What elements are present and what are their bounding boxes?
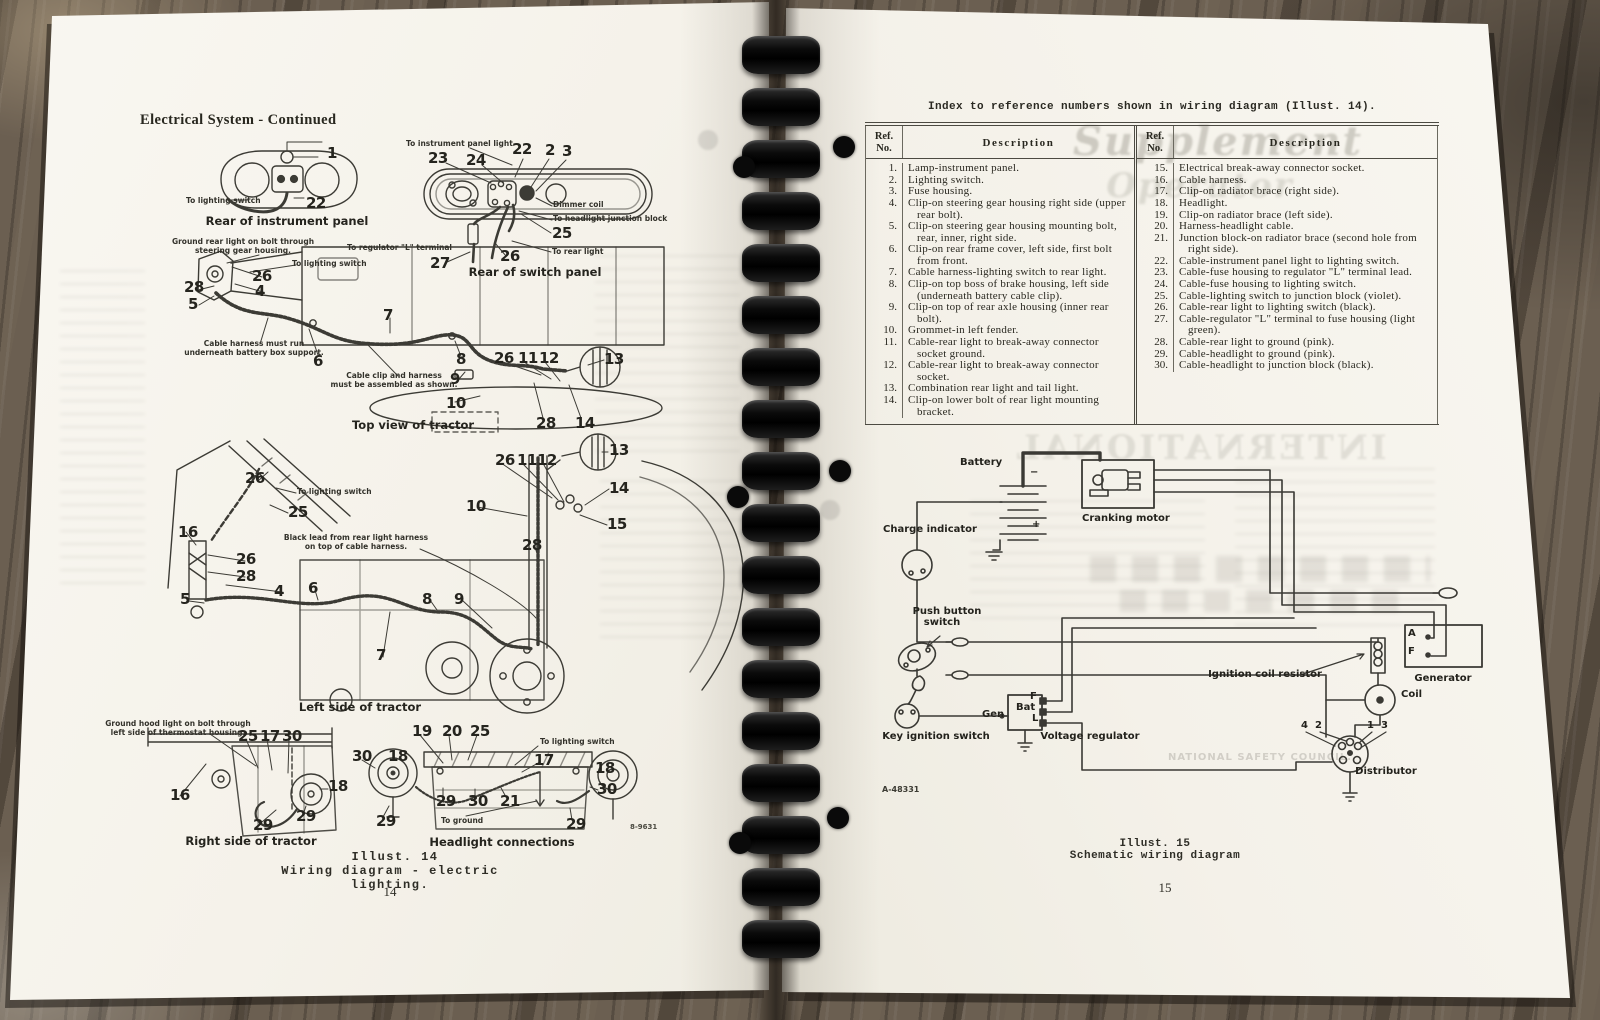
charge-indicator-label: Charge indicator bbox=[883, 524, 977, 535]
diagram-label: 9 bbox=[450, 372, 460, 387]
push-button-switch-label: Push button bbox=[913, 606, 982, 617]
diagram-label: 13 bbox=[609, 443, 629, 458]
diagram-label: 10 bbox=[446, 396, 466, 411]
index-title: Index to reference numbers shown in wiri… bbox=[865, 101, 1439, 113]
diagram-label: 12 bbox=[539, 351, 559, 366]
diagram-label: on top of cable harness. bbox=[305, 542, 407, 551]
diagram-label: 11 bbox=[517, 453, 537, 468]
schematic-wiring-line-art bbox=[850, 440, 1490, 820]
ref-no-cell: 8. bbox=[866, 279, 902, 302]
ref-no-cell: 18. bbox=[1137, 198, 1173, 210]
page-number: 14 bbox=[350, 884, 430, 900]
key-ignition-switch-label: Key ignition switch bbox=[882, 731, 990, 742]
binding-tooth bbox=[742, 88, 820, 126]
diagram-label: 22 bbox=[512, 142, 532, 157]
binding-tooth bbox=[742, 348, 820, 386]
diagram-label: 2 bbox=[545, 143, 555, 158]
ref-no-cell: 20. bbox=[1137, 221, 1173, 233]
index-table-right-half: Ref.No. Description 15.Electrical break-… bbox=[1137, 126, 1438, 424]
diagram-label: underneath battery box support. bbox=[184, 348, 324, 357]
figure-code-left: 8-9631 bbox=[630, 824, 657, 831]
index-table-row: 24.Cable-fuse housing to lighting switch… bbox=[1137, 279, 1437, 291]
column-header-description: Description bbox=[902, 126, 1134, 158]
punch-hole bbox=[833, 136, 855, 158]
binding-tooth bbox=[742, 140, 820, 178]
diagram-label: To instrument panel light bbox=[406, 139, 513, 148]
diagram-label: 2 bbox=[1315, 721, 1322, 731]
diagram-label: 30 bbox=[352, 749, 372, 764]
description-cell: Cable-headlight to junction block (black… bbox=[1173, 360, 1437, 372]
diagram-label: L bbox=[1032, 714, 1038, 724]
description-cell: Clip-on rear frame cover, left side, fir… bbox=[902, 244, 1134, 267]
diagram-label: Rear of instrument panel bbox=[206, 216, 369, 228]
index-table-row: 2.Lighting switch. bbox=[866, 175, 1134, 187]
diagram-label: 28 bbox=[184, 280, 204, 295]
diagram-label: Cable clip and harness bbox=[346, 371, 442, 380]
punch-hole bbox=[727, 486, 749, 508]
diagram-label: 27 bbox=[430, 256, 450, 271]
diagram-label: Ground hood light on bolt through bbox=[105, 719, 251, 728]
punch-hole bbox=[729, 832, 751, 854]
binding-tooth bbox=[742, 556, 820, 594]
ref-no-cell: 6. bbox=[866, 244, 902, 267]
diagram-label: 17 bbox=[260, 729, 280, 744]
diagram-label: 30 bbox=[282, 729, 302, 744]
illustration-caption: Illust. 15 bbox=[1060, 838, 1250, 850]
page-number: 15 bbox=[1125, 880, 1205, 896]
index-table-row: 1.Lamp-instrument panel. bbox=[866, 163, 1134, 175]
voltage-regulator-label: Voltage regulator bbox=[1040, 731, 1139, 742]
diagram-label: 30 bbox=[468, 794, 488, 809]
binding-tooth bbox=[742, 452, 820, 490]
diagram-label: 15 bbox=[607, 517, 627, 532]
column-header-ref-no: Ref.No. bbox=[866, 126, 902, 158]
diagram-label: 6 bbox=[308, 581, 318, 596]
index-table-row: 6.Clip-on rear frame cover, left side, f… bbox=[866, 244, 1134, 267]
diagram-label: 23 bbox=[428, 151, 448, 166]
diagram-label: 4 bbox=[1301, 721, 1308, 731]
ref-no-cell: 15. bbox=[1137, 163, 1173, 175]
description-cell: Clip-on lower bolt of rear light mountin… bbox=[902, 395, 1134, 418]
battery-label: Battery bbox=[960, 457, 1002, 468]
diagram-label: 30 bbox=[597, 782, 617, 797]
binding-tooth bbox=[742, 244, 820, 282]
diagram-label: left side of thermostat housing. bbox=[111, 728, 246, 737]
index-rows-1-14: 1.Lamp-instrument panel.2.Lighting switc… bbox=[866, 159, 1134, 424]
diagram-label: 19 bbox=[412, 724, 432, 739]
diagram-label: Dimmer coil bbox=[553, 200, 604, 209]
description-cell: Harness-headlight cable. bbox=[1173, 221, 1437, 233]
diagram-label: 4 bbox=[255, 284, 265, 299]
diagram-label: To lighting switch bbox=[540, 737, 615, 746]
diagram-label: 17 bbox=[534, 753, 554, 768]
diagram-label: 5 bbox=[180, 592, 190, 607]
ref-no-cell: 1. bbox=[866, 163, 902, 175]
diagram-label: steering gear housing. bbox=[195, 246, 291, 255]
diagram-label: 7 bbox=[383, 308, 393, 323]
coil-label: Coil bbox=[1401, 689, 1422, 700]
description-cell: Clip-on top of rear axle housing (inner … bbox=[902, 302, 1134, 325]
diagram-label: 18 bbox=[388, 749, 408, 764]
description-cell: Junction block-on radiator brace (second… bbox=[1173, 233, 1437, 256]
diagram-label: 6 bbox=[313, 354, 323, 369]
diagram-label: Bat bbox=[1016, 703, 1035, 713]
index-table-row: 14.Clip-on lower bolt of rear light moun… bbox=[866, 395, 1134, 418]
diagram-label: Gen bbox=[982, 710, 1004, 720]
binding-tooth bbox=[742, 816, 820, 854]
index-table-row: 30.Cable-headlight to junction block (bl… bbox=[1137, 360, 1437, 372]
ref-no-cell: 5. bbox=[866, 221, 902, 244]
diagram-label: 26 bbox=[495, 453, 515, 468]
diagram-label: 26 bbox=[245, 471, 265, 486]
diagram-label: Left side of tractor bbox=[299, 702, 421, 714]
diagram-label: 28 bbox=[522, 538, 542, 553]
diagram-label: F bbox=[1030, 692, 1037, 702]
index-table-row: 18.Headlight. bbox=[1137, 198, 1437, 210]
ref-no-cell: 4. bbox=[866, 198, 902, 221]
diagram-label: 1 bbox=[1367, 721, 1374, 731]
diagram-label: Cable harness must run bbox=[204, 339, 304, 348]
binding-tooth bbox=[742, 192, 820, 230]
diagram-label: 9 bbox=[454, 592, 464, 607]
illustration-caption: Schematic wiring diagram bbox=[1040, 850, 1270, 862]
binding-tooth bbox=[742, 764, 820, 802]
description-cell: Cable-rear light to break-away connector… bbox=[902, 360, 1134, 383]
index-table-row: 4.Clip-on steering gear housing right si… bbox=[866, 198, 1134, 221]
diagram-label: To headlight junction block bbox=[553, 214, 667, 223]
diagram-label: 29 bbox=[566, 817, 586, 832]
illustration-caption: Illust. 14 bbox=[300, 850, 490, 864]
ref-no-cell: 28. bbox=[1137, 337, 1173, 349]
diagram-label: 7 bbox=[376, 648, 386, 663]
diagram-label: 21 bbox=[500, 794, 520, 809]
description-cell: Lamp-instrument panel. bbox=[902, 163, 1134, 175]
index-table-left-half: Ref.No. Description 1.Lamp-instrument pa… bbox=[865, 126, 1137, 424]
binding-tooth bbox=[742, 712, 820, 750]
diagram-label: 1 bbox=[327, 146, 337, 161]
description-cell: Clip-on steering gear housing mounting b… bbox=[902, 221, 1134, 244]
binding-tooth bbox=[742, 920, 820, 958]
diagram-label: 13 bbox=[604, 352, 624, 367]
diagram-label: 8 bbox=[456, 352, 466, 367]
diagram-label: Right side of tractor bbox=[185, 836, 316, 848]
diagram-label: switch bbox=[924, 617, 960, 628]
diagram-label: 22 bbox=[306, 196, 326, 211]
cranking-motor-label: Cranking motor bbox=[1082, 513, 1170, 524]
diagram-label: 3 bbox=[1381, 721, 1388, 731]
diagram-label: Top view of tractor bbox=[352, 420, 474, 432]
diagram-label: 28 bbox=[236, 569, 256, 584]
diagram-label: 25 bbox=[552, 226, 572, 241]
binding-tooth bbox=[742, 660, 820, 698]
diagram-label: 3 bbox=[562, 144, 572, 159]
diagram-label: To rear light bbox=[552, 247, 603, 256]
diagram-label: 24 bbox=[466, 153, 486, 168]
diagram-label: 26 bbox=[494, 351, 514, 366]
diagram-label: 25 bbox=[470, 724, 490, 739]
ref-no-cell: 27. bbox=[1137, 314, 1173, 337]
description-cell: Cable-rear light to ground (pink). bbox=[1173, 337, 1437, 349]
generator-label: Generator bbox=[1414, 673, 1471, 684]
diagram-label: 11 bbox=[518, 351, 538, 366]
diagram-label: 14 bbox=[609, 481, 629, 496]
diagram-label: 10 bbox=[466, 499, 486, 514]
ignition-coil-resistor-label: Ignition coil resistor bbox=[1208, 669, 1322, 680]
diagram-label: To lighting switch bbox=[292, 259, 367, 268]
punch-hole-ghost bbox=[698, 130, 718, 150]
description-cell: Headlight. bbox=[1173, 198, 1437, 210]
diagram-label: F bbox=[1408, 647, 1415, 657]
index-table-row: 21.Junction block-on radiator brace (sec… bbox=[1137, 233, 1437, 256]
index-table-row: 5.Clip-on steering gear housing mounting… bbox=[866, 221, 1134, 244]
diagram-label: 26 bbox=[236, 552, 256, 567]
diagram-label: 18 bbox=[328, 779, 348, 794]
punch-hole bbox=[733, 156, 755, 178]
diagram-label: 18 bbox=[595, 761, 615, 776]
distributor-label: Distributor bbox=[1355, 766, 1417, 777]
photo-open-spiral-manual: Electrical System - Continued bbox=[0, 0, 1600, 1020]
diagram-label: 16 bbox=[170, 788, 190, 803]
diagram-label: 29 bbox=[376, 814, 396, 829]
diagram-label: 29 bbox=[296, 809, 316, 824]
manual-page-right: SupplementOperatorINTERNATIONALNATIONAL … bbox=[770, 0, 1600, 1020]
binding-tooth bbox=[742, 400, 820, 438]
diagram-label: Headlight connections bbox=[429, 837, 574, 849]
index-table-row: 8.Clip-on top boss of brake housing, lef… bbox=[866, 279, 1134, 302]
description-cell: Cable-fuse housing to lighting switch. bbox=[1173, 279, 1437, 291]
diagram-label: 5 bbox=[188, 297, 198, 312]
column-header-description: Description bbox=[1173, 126, 1437, 158]
index-table-row: 9.Clip-on top of rear axle housing (inne… bbox=[866, 302, 1134, 325]
index-table-row: 15.Electrical break-away connector socke… bbox=[1137, 163, 1437, 175]
description-cell: Clip-on steering gear housing right side… bbox=[902, 198, 1134, 221]
binding-tooth bbox=[742, 868, 820, 906]
punch-hole bbox=[827, 807, 849, 829]
diagram-label: 26 bbox=[500, 249, 520, 264]
diagram-label: 20 bbox=[442, 724, 462, 739]
diagram-label: Rear of switch panel bbox=[469, 267, 602, 279]
diagram-label: To lighting switch bbox=[297, 487, 372, 496]
ref-no-cell: 30. bbox=[1137, 360, 1173, 372]
diagram-label: 14 bbox=[575, 416, 595, 431]
ref-no-cell: 9. bbox=[866, 302, 902, 325]
diagram-label: 29 bbox=[253, 818, 273, 833]
manual-page-left: Electrical System - Continued bbox=[0, 0, 770, 1020]
diagram-label: − bbox=[1030, 468, 1038, 478]
diagram-label: + bbox=[1032, 520, 1040, 530]
diagram-label: 16 bbox=[178, 525, 198, 540]
index-table-row: 11.Cable-rear light to break-away connec… bbox=[866, 337, 1134, 360]
diagram-label: 25 bbox=[238, 729, 258, 744]
diagram-label: 29 bbox=[436, 794, 456, 809]
description-cell: Electrical break-away connector socket. bbox=[1173, 163, 1437, 175]
ref-no-cell: 21. bbox=[1137, 233, 1173, 256]
diagram-label: must be assembled as shown. bbox=[331, 380, 458, 389]
diagram-label: Black lead from rear light harness bbox=[284, 533, 428, 542]
ref-no-cell: 24. bbox=[1137, 279, 1173, 291]
ref-no-cell: 11. bbox=[866, 337, 902, 360]
diagram-label: Ground rear light on bolt through bbox=[172, 237, 314, 246]
diagram-label: 4 bbox=[274, 584, 284, 599]
index-table-row: 27.Cable-regulator "L" terminal to fuse … bbox=[1137, 314, 1437, 337]
diagram-label: 25 bbox=[288, 505, 308, 520]
binding-tooth bbox=[742, 36, 820, 74]
column-header-ref-no: Ref.No. bbox=[1137, 126, 1173, 158]
punch-hole bbox=[829, 460, 851, 482]
index-table-row: 20.Harness-headlight cable. bbox=[1137, 221, 1437, 233]
diagram-label: 28 bbox=[536, 416, 556, 431]
index-table-row: 28.Cable-rear light to ground (pink). bbox=[1137, 337, 1437, 349]
description-cell: Clip-on top boss of brake housing, left … bbox=[902, 279, 1134, 302]
diagram-label: To regulator "L" terminal bbox=[347, 243, 452, 252]
diagram-label: 8 bbox=[422, 592, 432, 607]
diagram-label: To lighting switch bbox=[186, 196, 261, 205]
description-cell: Cable-regulator "L" terminal to fuse hou… bbox=[1173, 314, 1437, 337]
description-cell: Cable-rear light to break-away connector… bbox=[902, 337, 1134, 360]
binding-tooth bbox=[742, 608, 820, 646]
ref-no-cell: 14. bbox=[866, 395, 902, 418]
punch-hole-ghost bbox=[820, 500, 840, 520]
diagram-label: To ground bbox=[441, 816, 483, 825]
binding-tooth bbox=[742, 296, 820, 334]
diagram-label: 12 bbox=[537, 453, 557, 468]
figure-code-right: A-48331 bbox=[882, 786, 919, 794]
index-rows-15-30: 15.Electrical break-away connector socke… bbox=[1137, 159, 1437, 378]
diagram-label: A bbox=[1408, 629, 1416, 639]
ref-no-cell: 12. bbox=[866, 360, 902, 383]
binding-tooth bbox=[742, 504, 820, 542]
index-table-row: 12.Cable-rear light to break-away connec… bbox=[866, 360, 1134, 383]
reference-index-table: Ref.No. Description 1.Lamp-instrument pa… bbox=[865, 122, 1439, 425]
